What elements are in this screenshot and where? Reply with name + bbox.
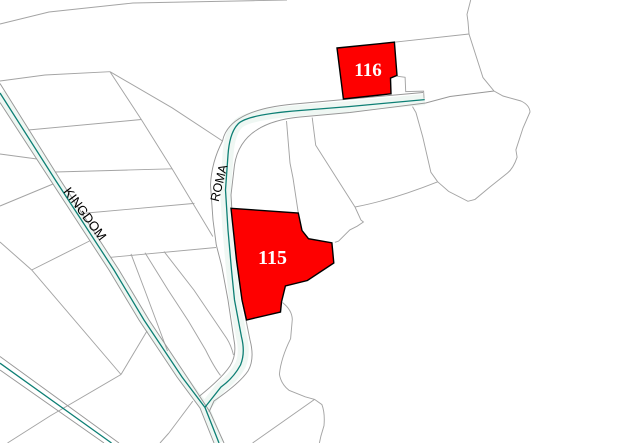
svg-text:116: 116 [354,60,381,81]
svg-text:115: 115 [258,247,287,269]
